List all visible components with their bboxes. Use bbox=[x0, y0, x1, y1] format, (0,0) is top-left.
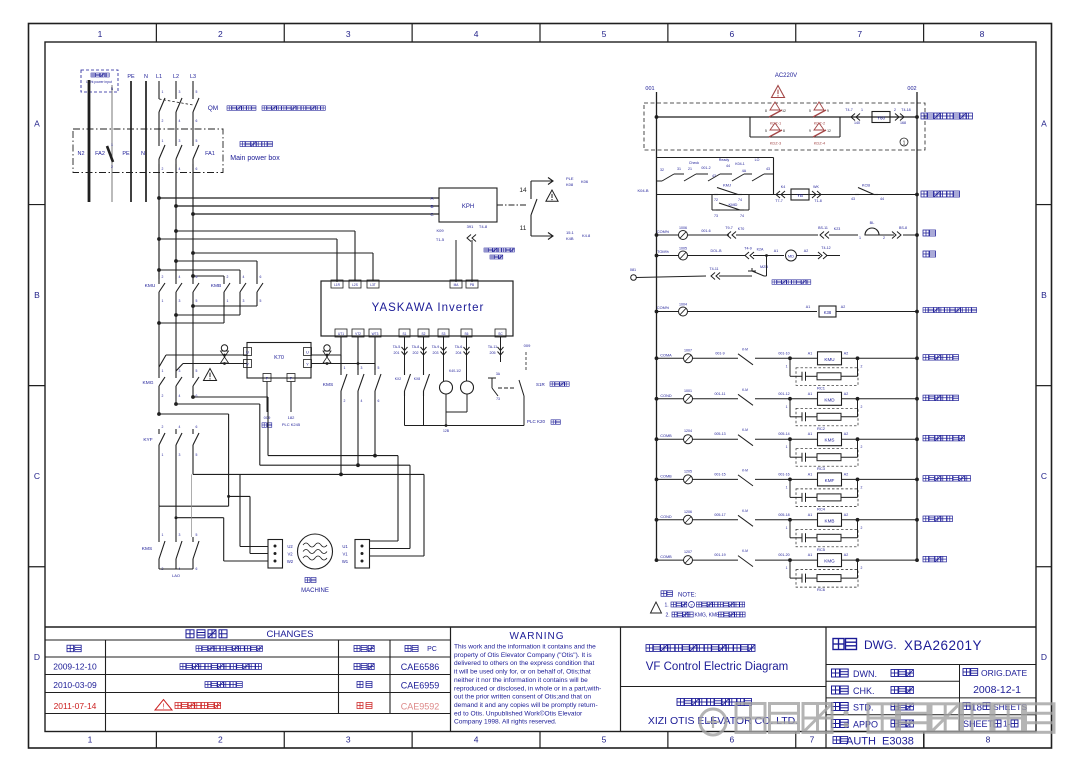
svg-text:KCB: KCB bbox=[862, 183, 871, 188]
svg-text:L2S: L2S bbox=[352, 283, 358, 287]
svg-text:K70: K70 bbox=[274, 355, 284, 361]
svg-text:A: A bbox=[34, 118, 40, 128]
svg-text:This work and the information: This work and the information it contain… bbox=[454, 644, 596, 651]
svg-text:A1: A1 bbox=[808, 472, 812, 476]
svg-text:4A: 4A bbox=[742, 169, 747, 173]
svg-text:2: 2 bbox=[162, 275, 164, 279]
svg-text:T4-11: T4-11 bbox=[709, 267, 718, 271]
svg-text:SHEET: SHEET bbox=[963, 719, 994, 729]
svg-text:2: 2 bbox=[111, 165, 113, 169]
svg-text:COND: COND bbox=[660, 515, 671, 519]
svg-text:201: 201 bbox=[394, 351, 400, 355]
svg-text:K4B: K4B bbox=[566, 236, 574, 241]
svg-text:KMJ: KMJ bbox=[723, 183, 731, 188]
svg-text:PB: PB bbox=[470, 283, 474, 287]
svg-text:B: B bbox=[34, 290, 40, 300]
svg-text:1007: 1007 bbox=[684, 348, 692, 352]
svg-text:7: 7 bbox=[857, 29, 862, 39]
svg-text:6: 6 bbox=[729, 29, 734, 39]
svg-text:6: 6 bbox=[260, 275, 262, 279]
svg-text:3: 3 bbox=[179, 369, 181, 373]
svg-text:KX2: KX2 bbox=[395, 377, 402, 381]
svg-text:2: 2 bbox=[218, 735, 223, 745]
svg-text:43: 43 bbox=[766, 167, 770, 171]
svg-text:4: 4 bbox=[179, 425, 181, 429]
svg-text:2: 2 bbox=[894, 108, 896, 112]
svg-text:CAE9592: CAE9592 bbox=[401, 702, 440, 712]
svg-text:WT3: WT3 bbox=[372, 332, 379, 336]
svg-text:S2: S2 bbox=[422, 332, 426, 336]
svg-text:AUTH: AUTH bbox=[846, 736, 876, 748]
svg-text:1: 1 bbox=[162, 369, 164, 373]
svg-text:LAO: LAO bbox=[172, 573, 180, 578]
svg-text:SC: SC bbox=[498, 332, 503, 336]
svg-text:KMF: KMF bbox=[825, 478, 835, 483]
svg-text:001-12: 001-12 bbox=[778, 392, 789, 396]
svg-text:L2: L2 bbox=[173, 74, 179, 80]
svg-text:2011-07-14: 2011-07-14 bbox=[54, 701, 97, 711]
svg-text:A1: A1 bbox=[808, 432, 812, 436]
svg-text:PE: PE bbox=[127, 74, 135, 80]
svg-text:5: 5 bbox=[196, 533, 198, 537]
svg-text:A1: A1 bbox=[808, 513, 812, 517]
svg-text:K40-1/2: K40-1/2 bbox=[449, 369, 461, 373]
svg-text:T4-9: T4-9 bbox=[744, 247, 751, 251]
svg-text:4: 4 bbox=[179, 394, 181, 398]
svg-text:NOTE:: NOTE: bbox=[678, 593, 697, 599]
svg-text:Y60: Y60 bbox=[877, 116, 886, 121]
svg-text:UT1: UT1 bbox=[338, 332, 344, 336]
svg-text:31: 31 bbox=[677, 167, 681, 171]
svg-text:6: 6 bbox=[729, 735, 734, 745]
svg-text:WK: WK bbox=[813, 185, 819, 189]
svg-text:Check: Check bbox=[689, 161, 699, 165]
svg-text:TA-11: TA-11 bbox=[488, 345, 497, 349]
svg-text:DWN.: DWN. bbox=[853, 669, 877, 679]
svg-text:!: ! bbox=[163, 704, 165, 711]
svg-text:AC220V: AC220V bbox=[775, 73, 797, 79]
svg-text:43: 43 bbox=[851, 197, 855, 201]
svg-text:2: 2 bbox=[861, 364, 863, 368]
svg-text:73: 73 bbox=[714, 214, 718, 218]
svg-text:PE: PE bbox=[122, 151, 130, 157]
svg-text:1: 1 bbox=[344, 366, 346, 370]
svg-text:1207: 1207 bbox=[684, 550, 692, 554]
svg-text:K4: K4 bbox=[781, 185, 785, 189]
svg-text:2: 2 bbox=[861, 526, 863, 530]
svg-text:KMB: KMB bbox=[825, 518, 835, 523]
svg-text:RC1: RC1 bbox=[817, 385, 826, 390]
svg-text:K04-B: K04-B bbox=[637, 188, 648, 193]
svg-text:K23: K23 bbox=[834, 227, 840, 231]
svg-text:KMG: KMG bbox=[824, 559, 835, 564]
svg-text:4: 4 bbox=[179, 167, 181, 171]
svg-text:3: 3 bbox=[179, 139, 181, 143]
svg-text:L1: L1 bbox=[156, 74, 162, 80]
svg-text:PLC K245: PLC K245 bbox=[282, 422, 301, 427]
svg-text:PLE: PLE bbox=[566, 176, 574, 181]
svg-text:009: 009 bbox=[524, 343, 531, 348]
svg-text:C: C bbox=[34, 471, 40, 481]
svg-text:V: V bbox=[246, 362, 249, 367]
svg-text:A: A bbox=[1041, 118, 1047, 128]
svg-text:1.: 1. bbox=[665, 603, 669, 609]
svg-text:Ready: Ready bbox=[719, 158, 730, 162]
svg-text:KMS: KMS bbox=[323, 382, 333, 388]
svg-text:A1: A1 bbox=[774, 249, 778, 253]
svg-text:CAE6586: CAE6586 bbox=[401, 662, 440, 672]
svg-text:MACHINE: MACHINE bbox=[301, 588, 329, 594]
svg-text:C: C bbox=[1041, 471, 1047, 481]
svg-text:COMB: COMB bbox=[660, 474, 672, 478]
svg-text:001-9: 001-9 bbox=[715, 351, 724, 355]
svg-text:TA-8: TA-8 bbox=[412, 345, 420, 349]
svg-text:1: 1 bbox=[162, 139, 164, 143]
svg-text:U: U bbox=[246, 350, 249, 355]
svg-text:RC4: RC4 bbox=[817, 506, 826, 511]
svg-text:11: 11 bbox=[520, 225, 527, 232]
svg-text:QM: QM bbox=[208, 105, 218, 112]
svg-text:9: 9 bbox=[827, 109, 829, 113]
svg-text:K08: K08 bbox=[566, 182, 574, 187]
svg-text:391: 391 bbox=[467, 224, 474, 229]
svg-text:12: 12 bbox=[827, 129, 831, 133]
svg-text:140: 140 bbox=[854, 121, 860, 125]
svg-text:4: 4 bbox=[474, 29, 479, 39]
svg-text:005-17: 005-17 bbox=[714, 513, 725, 517]
svg-text:A2: A2 bbox=[844, 472, 848, 476]
svg-text:A1: A1 bbox=[808, 351, 812, 355]
svg-text:001: 001 bbox=[645, 86, 654, 92]
svg-text:RC5: RC5 bbox=[817, 547, 826, 552]
svg-text:YASKAWA Inverter: YASKAWA Inverter bbox=[372, 302, 485, 314]
svg-text:B: B bbox=[1041, 290, 1047, 300]
svg-text:A2: A2 bbox=[844, 553, 848, 557]
svg-text:2: 2 bbox=[227, 275, 229, 279]
svg-text:K4.8: K4.8 bbox=[582, 233, 591, 238]
svg-text:5: 5 bbox=[378, 366, 380, 370]
svg-text:001-15: 001-15 bbox=[714, 472, 725, 476]
svg-text:1: 1 bbox=[88, 735, 93, 745]
svg-text:out the prior written consent: out the prior written consent of Otis;an… bbox=[454, 694, 591, 701]
svg-text:E3038: E3038 bbox=[882, 736, 914, 748]
svg-text:L3: L3 bbox=[190, 74, 196, 80]
svg-text:K06: K06 bbox=[581, 179, 589, 184]
svg-text:8: 8 bbox=[765, 109, 767, 113]
svg-text:72: 72 bbox=[714, 198, 718, 202]
svg-text:S3: S3 bbox=[442, 332, 446, 336]
svg-text:T4-8: T4-8 bbox=[479, 224, 488, 229]
svg-text:4: 4 bbox=[243, 275, 245, 279]
svg-text:VF Control Electric Diagram: VF Control Electric Diagram bbox=[646, 661, 789, 673]
svg-text:3: 3 bbox=[179, 90, 181, 94]
svg-text:KMU: KMU bbox=[824, 357, 834, 362]
svg-text:WARNING: WARNING bbox=[510, 631, 565, 642]
svg-text:COMB: COMB bbox=[660, 555, 672, 559]
svg-text:001-20: 001-20 bbox=[778, 553, 789, 557]
svg-text:KDZ-3: KDZ-3 bbox=[770, 141, 782, 146]
svg-text:U: U bbox=[306, 350, 309, 355]
svg-text:5: 5 bbox=[196, 139, 198, 143]
svg-text:T4-12: T4-12 bbox=[821, 246, 830, 250]
svg-text:5: 5 bbox=[196, 90, 198, 94]
svg-text:001-6: 001-6 bbox=[701, 229, 710, 233]
svg-text:S1: S1 bbox=[403, 332, 407, 336]
svg-text:202: 202 bbox=[413, 351, 419, 355]
svg-text:9: 9 bbox=[809, 129, 811, 133]
svg-text:2.: 2. bbox=[666, 613, 670, 619]
svg-text:CHK.: CHK. bbox=[853, 686, 875, 696]
svg-text:Company 1998. All rights res: Company 1998. All rights reserved. bbox=[454, 719, 557, 726]
svg-text:TA-9: TA-9 bbox=[432, 345, 440, 349]
svg-text:it will be used only for, or o: it will be used only for, or on behalf o… bbox=[454, 669, 591, 676]
svg-text:B: B bbox=[430, 204, 433, 209]
svg-text:1: 1 bbox=[111, 143, 113, 147]
svg-text:RC6: RC6 bbox=[817, 587, 826, 592]
svg-text:44: 44 bbox=[880, 197, 884, 201]
svg-text:1: 1 bbox=[162, 453, 164, 457]
svg-text:15.1: 15.1 bbox=[566, 230, 575, 235]
svg-text:7: 7 bbox=[810, 735, 815, 745]
svg-text:Y: Y bbox=[306, 362, 309, 367]
svg-text:PC: PC bbox=[427, 646, 437, 653]
svg-text:204: 204 bbox=[456, 351, 462, 355]
svg-text:A2: A2 bbox=[844, 392, 848, 396]
svg-text:2: 2 bbox=[162, 425, 164, 429]
svg-text:D: D bbox=[1041, 652, 1047, 662]
svg-text:3: 3 bbox=[346, 735, 351, 745]
svg-text:5: 5 bbox=[260, 299, 262, 303]
svg-text:demand it and any copies will: demand it and any copies will be promptl… bbox=[454, 702, 598, 709]
svg-text:COND: COND bbox=[660, 394, 671, 398]
svg-text:A1: A1 bbox=[808, 553, 812, 557]
svg-text:2: 2 bbox=[162, 119, 164, 123]
svg-text:MZB: MZB bbox=[760, 265, 768, 269]
svg-text:4: 4 bbox=[474, 735, 479, 745]
svg-text:2: 2 bbox=[861, 566, 863, 570]
svg-text:002: 002 bbox=[907, 86, 916, 92]
svg-text:T7-7: T7-7 bbox=[775, 199, 782, 203]
svg-text:3: 3 bbox=[361, 366, 363, 370]
svg-text:N: N bbox=[141, 151, 145, 157]
svg-text:168: 168 bbox=[900, 121, 906, 125]
svg-text:BS-11: BS-11 bbox=[818, 226, 828, 230]
svg-text:8: 8 bbox=[986, 735, 991, 745]
svg-text:T1-8: T1-8 bbox=[814, 199, 821, 203]
svg-text:LO: LO bbox=[755, 158, 760, 162]
svg-text:V2: V2 bbox=[287, 552, 293, 557]
svg-text:W2: W2 bbox=[287, 559, 294, 564]
svg-text:4: 4 bbox=[179, 119, 181, 123]
svg-text:KMG: KMG bbox=[143, 380, 154, 386]
svg-text:A2: A2 bbox=[841, 305, 845, 309]
svg-text:COM%: COM% bbox=[657, 306, 670, 310]
svg-text:8: 8 bbox=[980, 29, 985, 39]
svg-text:5: 5 bbox=[809, 109, 811, 113]
svg-text:081: 081 bbox=[630, 268, 636, 272]
svg-text:4: 4 bbox=[361, 399, 363, 403]
svg-text:K-M: K-M bbox=[742, 549, 748, 553]
svg-text:U1: U1 bbox=[342, 544, 348, 549]
svg-text:005-13: 005-13 bbox=[714, 432, 725, 436]
svg-text:property of Otis Elevator Com: property of Otis Elevator Company ("Otis… bbox=[454, 652, 592, 659]
svg-text:005-14: 005-14 bbox=[778, 432, 789, 436]
svg-text:205: 205 bbox=[490, 351, 496, 355]
svg-text:CAE6959: CAE6959 bbox=[401, 681, 440, 691]
svg-text:KMU: KMU bbox=[145, 283, 156, 289]
svg-text:U2: U2 bbox=[287, 544, 293, 549]
svg-text:K-M: K-M bbox=[742, 428, 748, 432]
svg-text:6: 6 bbox=[378, 399, 380, 403]
svg-text:VT2: VT2 bbox=[355, 332, 361, 336]
svg-text:DOL-B: DOL-B bbox=[711, 249, 723, 253]
svg-text:A2: A2 bbox=[844, 513, 848, 517]
svg-text:KPH: KPH bbox=[462, 204, 474, 210]
svg-text:001-16: 001-16 bbox=[778, 472, 789, 476]
svg-text:1: 1 bbox=[786, 566, 788, 570]
svg-text:KX8: KX8 bbox=[414, 377, 421, 381]
svg-text:K-M: K-M bbox=[742, 388, 748, 392]
svg-text:21: 21 bbox=[688, 167, 692, 171]
svg-text:ed to Otis. Unpublished: ed to Otis. Unpublished Work©Otis Elevat… bbox=[454, 709, 583, 717]
svg-text:1: 1 bbox=[786, 445, 788, 449]
svg-text:73: 73 bbox=[496, 397, 500, 401]
svg-text:A: A bbox=[430, 196, 433, 201]
svg-text:K-M: K-M bbox=[742, 347, 748, 351]
svg-text:YB: YB bbox=[797, 193, 803, 198]
svg-text:1: 1 bbox=[162, 90, 164, 94]
svg-text:203: 203 bbox=[433, 351, 439, 355]
svg-text:44: 44 bbox=[726, 164, 730, 168]
svg-text:T4-7: T4-7 bbox=[845, 108, 852, 112]
svg-text:1: 1 bbox=[861, 108, 863, 112]
svg-text:KMD: KMD bbox=[729, 202, 738, 207]
svg-text:TA-6: TA-6 bbox=[455, 345, 463, 349]
svg-text:W1: W1 bbox=[342, 559, 349, 564]
svg-text:A1: A1 bbox=[808, 392, 812, 396]
svg-text:KMD: KMD bbox=[824, 397, 835, 402]
svg-text:182: 182 bbox=[288, 415, 295, 420]
svg-text:COMA: COMA bbox=[660, 353, 672, 357]
svg-text:K-M: K-M bbox=[742, 509, 748, 513]
svg-text:DWG.: DWG. bbox=[864, 638, 897, 652]
svg-text:3A: 3A bbox=[496, 372, 501, 376]
svg-text:PLC K20: PLC K20 bbox=[527, 419, 546, 424]
svg-text:2: 2 bbox=[344, 399, 346, 403]
svg-text:BS-8: BS-8 bbox=[899, 226, 907, 230]
svg-text:5: 5 bbox=[196, 453, 198, 457]
svg-text:K09: K09 bbox=[436, 228, 444, 233]
svg-text:FA2: FA2 bbox=[95, 151, 105, 157]
svg-text:N2: N2 bbox=[77, 151, 84, 157]
svg-text:001-19: 001-19 bbox=[714, 553, 725, 557]
svg-text:K2A: K2A bbox=[757, 248, 764, 252]
svg-text:APPO: APPO bbox=[853, 720, 878, 730]
svg-text:COM%: COM% bbox=[657, 230, 670, 234]
svg-text:XIZI OTIS ELEVATOR CO. LTD.: XIZI OTIS ELEVATOR CO. LTD. bbox=[648, 715, 798, 727]
svg-text:1: 1 bbox=[859, 236, 861, 240]
svg-text:T9-7: T9-7 bbox=[725, 226, 732, 230]
svg-text:FA1: FA1 bbox=[205, 151, 215, 157]
svg-text:T1-5: T1-5 bbox=[436, 237, 445, 242]
svg-text:1: 1 bbox=[786, 364, 788, 368]
svg-text:COMB: COMB bbox=[660, 434, 672, 438]
svg-text:2: 2 bbox=[861, 405, 863, 409]
svg-text:12: 12 bbox=[782, 109, 786, 113]
svg-text:74: 74 bbox=[740, 214, 744, 218]
svg-text:1: 1 bbox=[786, 405, 788, 409]
svg-text:2: 2 bbox=[162, 394, 164, 398]
svg-text:KMS: KMS bbox=[142, 546, 152, 552]
svg-text:1: 1 bbox=[786, 485, 788, 489]
svg-text:K04-1: K04-1 bbox=[735, 162, 745, 166]
svg-text:1: 1 bbox=[227, 299, 229, 303]
svg-text:1006: 1006 bbox=[679, 226, 687, 230]
svg-text:32: 32 bbox=[660, 168, 664, 172]
svg-text:2010-03-09: 2010-03-09 bbox=[53, 680, 97, 690]
svg-text:KMS: KMS bbox=[825, 438, 835, 443]
svg-text:S1R: S1R bbox=[536, 382, 546, 387]
svg-text:6: 6 bbox=[196, 425, 198, 429]
svg-text:12B: 12B bbox=[443, 429, 450, 433]
svg-text:1: 1 bbox=[98, 29, 103, 39]
svg-text:2008-12-1: 2008-12-1 bbox=[973, 684, 1021, 696]
svg-text:2: 2 bbox=[162, 167, 164, 171]
svg-text:1206: 1206 bbox=[684, 510, 692, 514]
svg-text:reproduced or disclosed, in wh: reproduced or disclosed, in whole or in … bbox=[454, 685, 601, 692]
svg-text:RC2: RC2 bbox=[817, 426, 826, 431]
svg-text:A2: A2 bbox=[844, 432, 848, 436]
svg-text:8: 8 bbox=[783, 129, 785, 133]
svg-text:1: 1 bbox=[162, 533, 164, 537]
svg-text:neither it nor the informatio: neither it nor the information it contai… bbox=[454, 677, 588, 684]
svg-text:L3T: L3T bbox=[370, 283, 376, 287]
svg-text:2: 2 bbox=[883, 236, 885, 240]
svg-text:001-2: 001-2 bbox=[701, 166, 710, 170]
svg-text:3: 3 bbox=[243, 299, 245, 303]
svg-text:ORIG.DATE: ORIG.DATE bbox=[981, 668, 1027, 678]
svg-text:3: 3 bbox=[179, 299, 181, 303]
svg-text:5: 5 bbox=[765, 129, 767, 133]
svg-text:K-M: K-M bbox=[742, 468, 748, 472]
svg-text:1204: 1204 bbox=[684, 429, 692, 433]
svg-text:6: 6 bbox=[196, 167, 198, 171]
svg-text:2: 2 bbox=[861, 485, 863, 489]
svg-text:1: 1 bbox=[786, 526, 788, 530]
svg-text:TA-5: TA-5 bbox=[393, 345, 401, 349]
svg-text:6: 6 bbox=[196, 567, 198, 571]
svg-text:K70: K70 bbox=[738, 227, 744, 231]
svg-text:TOM%: TOM% bbox=[657, 250, 669, 254]
svg-text:6: 6 bbox=[196, 119, 198, 123]
svg-text:6: 6 bbox=[196, 275, 198, 279]
svg-text:Main power box: Main power box bbox=[230, 155, 280, 162]
svg-text:1205: 1205 bbox=[684, 469, 692, 473]
svg-text:A1: A1 bbox=[806, 305, 810, 309]
svg-text:4: 4 bbox=[179, 275, 181, 279]
svg-text:74: 74 bbox=[738, 198, 742, 202]
svg-text:3: 3 bbox=[346, 29, 351, 39]
svg-text:5: 5 bbox=[196, 369, 198, 373]
svg-text:RC3: RC3 bbox=[817, 466, 826, 471]
svg-text:001-10: 001-10 bbox=[778, 351, 789, 355]
svg-text:BL: BL bbox=[870, 221, 875, 225]
svg-text:001-11: 001-11 bbox=[715, 392, 726, 396]
svg-text:K38: K38 bbox=[824, 310, 832, 315]
svg-text:MD: MD bbox=[788, 255, 794, 259]
svg-text:XBA26201Y: XBA26201Y bbox=[904, 638, 982, 653]
svg-text:D: D bbox=[34, 652, 40, 662]
